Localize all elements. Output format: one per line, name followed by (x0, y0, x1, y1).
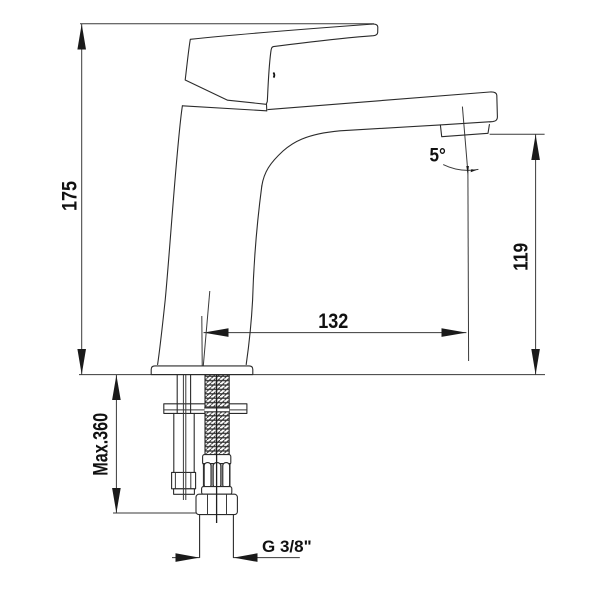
svg-text:119: 119 (509, 243, 531, 271)
svg-text:175: 175 (58, 181, 82, 211)
svg-text:G 3/8": G 3/8" (262, 537, 312, 556)
svg-text:132: 132 (318, 310, 348, 334)
svg-text:Max.360: Max.360 (88, 413, 112, 476)
svg-text:5°: 5° (430, 145, 446, 166)
